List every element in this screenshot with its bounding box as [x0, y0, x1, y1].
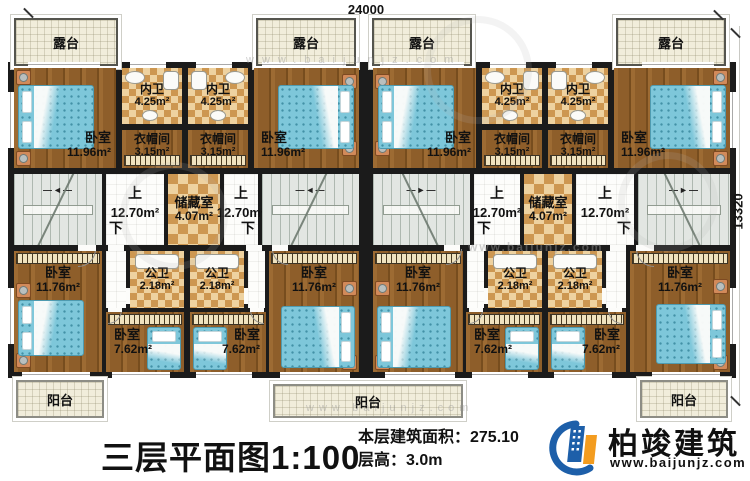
bedroom-mid: 卧室11.76m²: [373, 251, 463, 372]
window: [262, 62, 346, 68]
pillow: [22, 332, 32, 350]
bed: [551, 327, 585, 370]
brand-logo-icon: [544, 416, 606, 478]
room-label: 内卫4.25m²: [122, 83, 182, 109]
bed: [656, 304, 726, 364]
up-label: 上: [224, 183, 258, 203]
room-label: 卧室11.76m²: [269, 266, 359, 294]
window: [554, 372, 612, 378]
storage-room: 储藏室4.07m²: [524, 174, 572, 245]
balcony-label: 阳台: [47, 390, 73, 409]
door-opening: [469, 308, 483, 312]
stair-direction-arrow: —►—: [373, 185, 470, 195]
door-opening: [126, 288, 130, 304]
terrace: 露台: [256, 18, 356, 66]
door-opening: [610, 245, 626, 251]
door-opening: [602, 288, 606, 304]
bedroom-small: 卧室7.62m²: [106, 312, 184, 372]
public-bathroom: 公卫2.18m²: [548, 251, 602, 308]
floor-area-text: 本层建筑面积：275.10: [358, 426, 519, 449]
bed: [377, 306, 451, 368]
pillow: [340, 91, 350, 113]
window: [130, 62, 166, 68]
room-label: 内卫4.25m²: [188, 83, 248, 109]
storage-room: 储藏室4.07m²: [168, 174, 220, 245]
pillow: [510, 331, 534, 342]
room-label: 衣帽间3.15m²: [482, 133, 542, 159]
room-label: 衣帽间3.15m²: [188, 133, 248, 159]
blanket: [34, 86, 60, 148]
sheet-info: 本层建筑面积：275.10 层高：3.0m: [358, 426, 519, 472]
up-label: 上: [106, 183, 164, 203]
pillow: [556, 331, 580, 342]
bedroom-large: 卧室11.96m²: [254, 68, 359, 168]
corridor: [248, 251, 265, 308]
nightstand: [16, 151, 31, 166]
terrace: 露台: [372, 18, 472, 66]
toilet: [502, 110, 518, 121]
stair-hall: 上 12.70m² 下: [224, 174, 258, 245]
cloakroom: 衣帽间3.15m²: [122, 130, 182, 168]
blanket: [148, 344, 180, 366]
window: [112, 372, 170, 378]
nightstand: [16, 70, 31, 85]
toilet: [570, 110, 586, 121]
bed: [281, 306, 355, 368]
stair-hall: 上 12.70m² 下: [576, 174, 634, 245]
stair-hall: 上 12.70m² 下: [106, 174, 164, 245]
down-label: 下: [241, 218, 255, 238]
cloakroom: 衣帽间3.15m²: [482, 130, 542, 168]
pillow: [712, 91, 722, 113]
balcony-label: 阳台: [671, 390, 697, 409]
door-opening: [250, 308, 264, 312]
window: [22, 372, 90, 378]
dimension-tick: [23, 8, 34, 19]
window: [28, 62, 100, 68]
window: [490, 62, 526, 68]
room-label: 储藏室4.07m²: [168, 196, 220, 224]
door-opening: [244, 288, 248, 304]
window: [196, 62, 232, 68]
room-label: 卧室7.62m²: [114, 328, 152, 356]
inner-bathroom: 内卫4.25m²: [548, 68, 608, 124]
toilet: [142, 110, 158, 121]
pillow: [382, 121, 392, 143]
pillow: [382, 91, 392, 113]
window: [196, 372, 252, 378]
public-bathroom: 公卫2.18m²: [130, 251, 184, 308]
terrace-label: 露台: [658, 33, 684, 52]
window: [280, 372, 350, 378]
room-label: 卧室11.76m²: [630, 266, 730, 294]
blanket: [552, 344, 584, 366]
window: [8, 288, 14, 344]
door-opening: [108, 308, 122, 312]
blanket: [34, 301, 60, 355]
door-opening: [470, 245, 486, 251]
window: [556, 62, 592, 68]
room-label: 卧室11.96m²: [621, 131, 665, 159]
room-label: 内卫4.25m²: [548, 83, 608, 109]
window: [642, 62, 714, 68]
room-label: 卧室11.76m²: [14, 266, 102, 294]
nightstand: [713, 151, 728, 166]
room-label: 公卫2.18m²: [488, 267, 542, 293]
room-label: 衣帽间3.15m²: [548, 133, 608, 159]
terrace: 露台: [14, 18, 118, 66]
inner-bathroom: 内卫4.25m²: [188, 68, 248, 124]
door-opening: [108, 245, 124, 251]
inner-bathroom: 内卫4.25m²: [482, 68, 542, 124]
balcony-label: 阳台: [355, 392, 381, 411]
public-bathroom: 公卫2.18m²: [190, 251, 244, 308]
door-opening: [484, 288, 488, 304]
room-label: 卧室7.62m²: [582, 328, 620, 356]
staircase: —►—: [638, 174, 730, 245]
dimension-top: 24000: [331, 2, 401, 17]
bedroom-mid: 卧室11.76m²: [269, 251, 359, 372]
window: [380, 62, 464, 68]
terrace-label: 露台: [409, 33, 435, 52]
bedroom-large: 卧室11.96m²: [614, 68, 730, 168]
room-label: 卧室11.96m²: [67, 131, 111, 159]
room-label: 卧室7.62m²: [222, 328, 260, 356]
door-opening: [78, 245, 96, 251]
bedroom-large: 卧室11.96m²: [373, 68, 476, 168]
staircase: —►—: [373, 174, 470, 245]
room-label: 卧室11.96m²: [427, 131, 471, 159]
bedroom-mid: 卧室11.76m²: [630, 251, 730, 372]
window: [472, 372, 528, 378]
cloakroom: 衣帽间3.15m²: [188, 130, 248, 168]
pillow: [22, 121, 32, 143]
room-label: 卧室11.96m²: [261, 131, 305, 159]
floor-height-text: 层高：3.0m: [358, 449, 519, 472]
brand-website: www.baijunjz.com: [610, 455, 746, 470]
nightstand: [713, 70, 728, 85]
up-label: 上: [474, 183, 520, 203]
pillow: [340, 121, 350, 143]
inner-bathroom: 内卫4.25m²: [122, 68, 182, 124]
sheet-title: 三层平面图1:100: [97, 431, 364, 481]
room-label: 卧室7.62m²: [474, 328, 512, 356]
dimension-right: 13320: [731, 176, 746, 248]
down-label: 下: [617, 218, 631, 238]
bed: [18, 300, 84, 356]
room-label: 卧室11.76m²: [373, 266, 463, 294]
door-opening: [246, 245, 262, 251]
door-opening: [608, 308, 622, 312]
public-bathroom: 公卫2.18m²: [488, 251, 542, 308]
down-label: 下: [477, 218, 491, 238]
pillow: [22, 91, 32, 113]
stair-direction-arrow: —◄—: [262, 185, 359, 195]
room-label: 内卫4.25m²: [482, 83, 542, 109]
blanket: [394, 86, 420, 148]
window: [385, 372, 455, 378]
pillow: [712, 338, 722, 358]
stair-direction-arrow: —◄—: [14, 185, 102, 195]
pillow: [712, 310, 722, 330]
room-label: 公卫2.18m²: [548, 267, 602, 293]
window: [730, 92, 736, 148]
corridor: [606, 251, 626, 308]
corridor: [106, 251, 126, 308]
corridor: [467, 251, 484, 308]
toilet: [210, 110, 226, 121]
room-label: 衣帽间3.15m²: [122, 133, 182, 159]
up-label: 上: [576, 183, 634, 203]
blanket: [393, 307, 419, 367]
pillow: [341, 341, 351, 362]
pillow: [152, 331, 176, 342]
room-label: 储藏室4.07m²: [524, 196, 572, 224]
door-opening: [272, 245, 288, 251]
bed: [147, 327, 181, 370]
pillow: [712, 121, 722, 143]
door-opening: [636, 245, 654, 251]
floor-plan-sheet: 24000 13320 露台 露台 露台 露台 阳台 阳台 阳台 卧室11.96…: [0, 0, 750, 481]
down-label: 下: [109, 218, 123, 238]
terrace-label: 露台: [293, 33, 319, 52]
room-label: 公卫2.18m²: [130, 267, 184, 293]
blanket: [313, 307, 339, 367]
stair-hall: 上 12.70m² 下: [474, 174, 520, 245]
balcony: 阳台: [640, 380, 728, 418]
pillow: [341, 312, 351, 333]
terrace: 露台: [616, 18, 726, 66]
staircase: —◄—: [262, 174, 359, 245]
cloakroom: 衣帽间3.15m²: [548, 130, 608, 168]
pillow: [381, 312, 391, 333]
blanket: [312, 86, 338, 148]
window: [652, 372, 720, 378]
blanket: [684, 305, 710, 363]
balcony: 阳台: [16, 380, 104, 418]
terrace-label: 露台: [53, 33, 79, 52]
room-label: 公卫2.18m²: [190, 267, 244, 293]
bedroom-mid: 卧室11.76m²: [14, 251, 102, 372]
bedroom-large: 卧室11.96m²: [14, 68, 116, 168]
stair-direction-arrow: —►—: [638, 185, 730, 195]
pillow: [198, 331, 222, 342]
window: [730, 288, 736, 344]
staircase: —◄—: [14, 174, 102, 245]
door-opening: [444, 245, 460, 251]
blanket: [684, 86, 710, 148]
window: [8, 92, 14, 148]
pillow: [22, 306, 32, 324]
pillow: [381, 341, 391, 362]
balcony: 阳台: [273, 384, 463, 418]
